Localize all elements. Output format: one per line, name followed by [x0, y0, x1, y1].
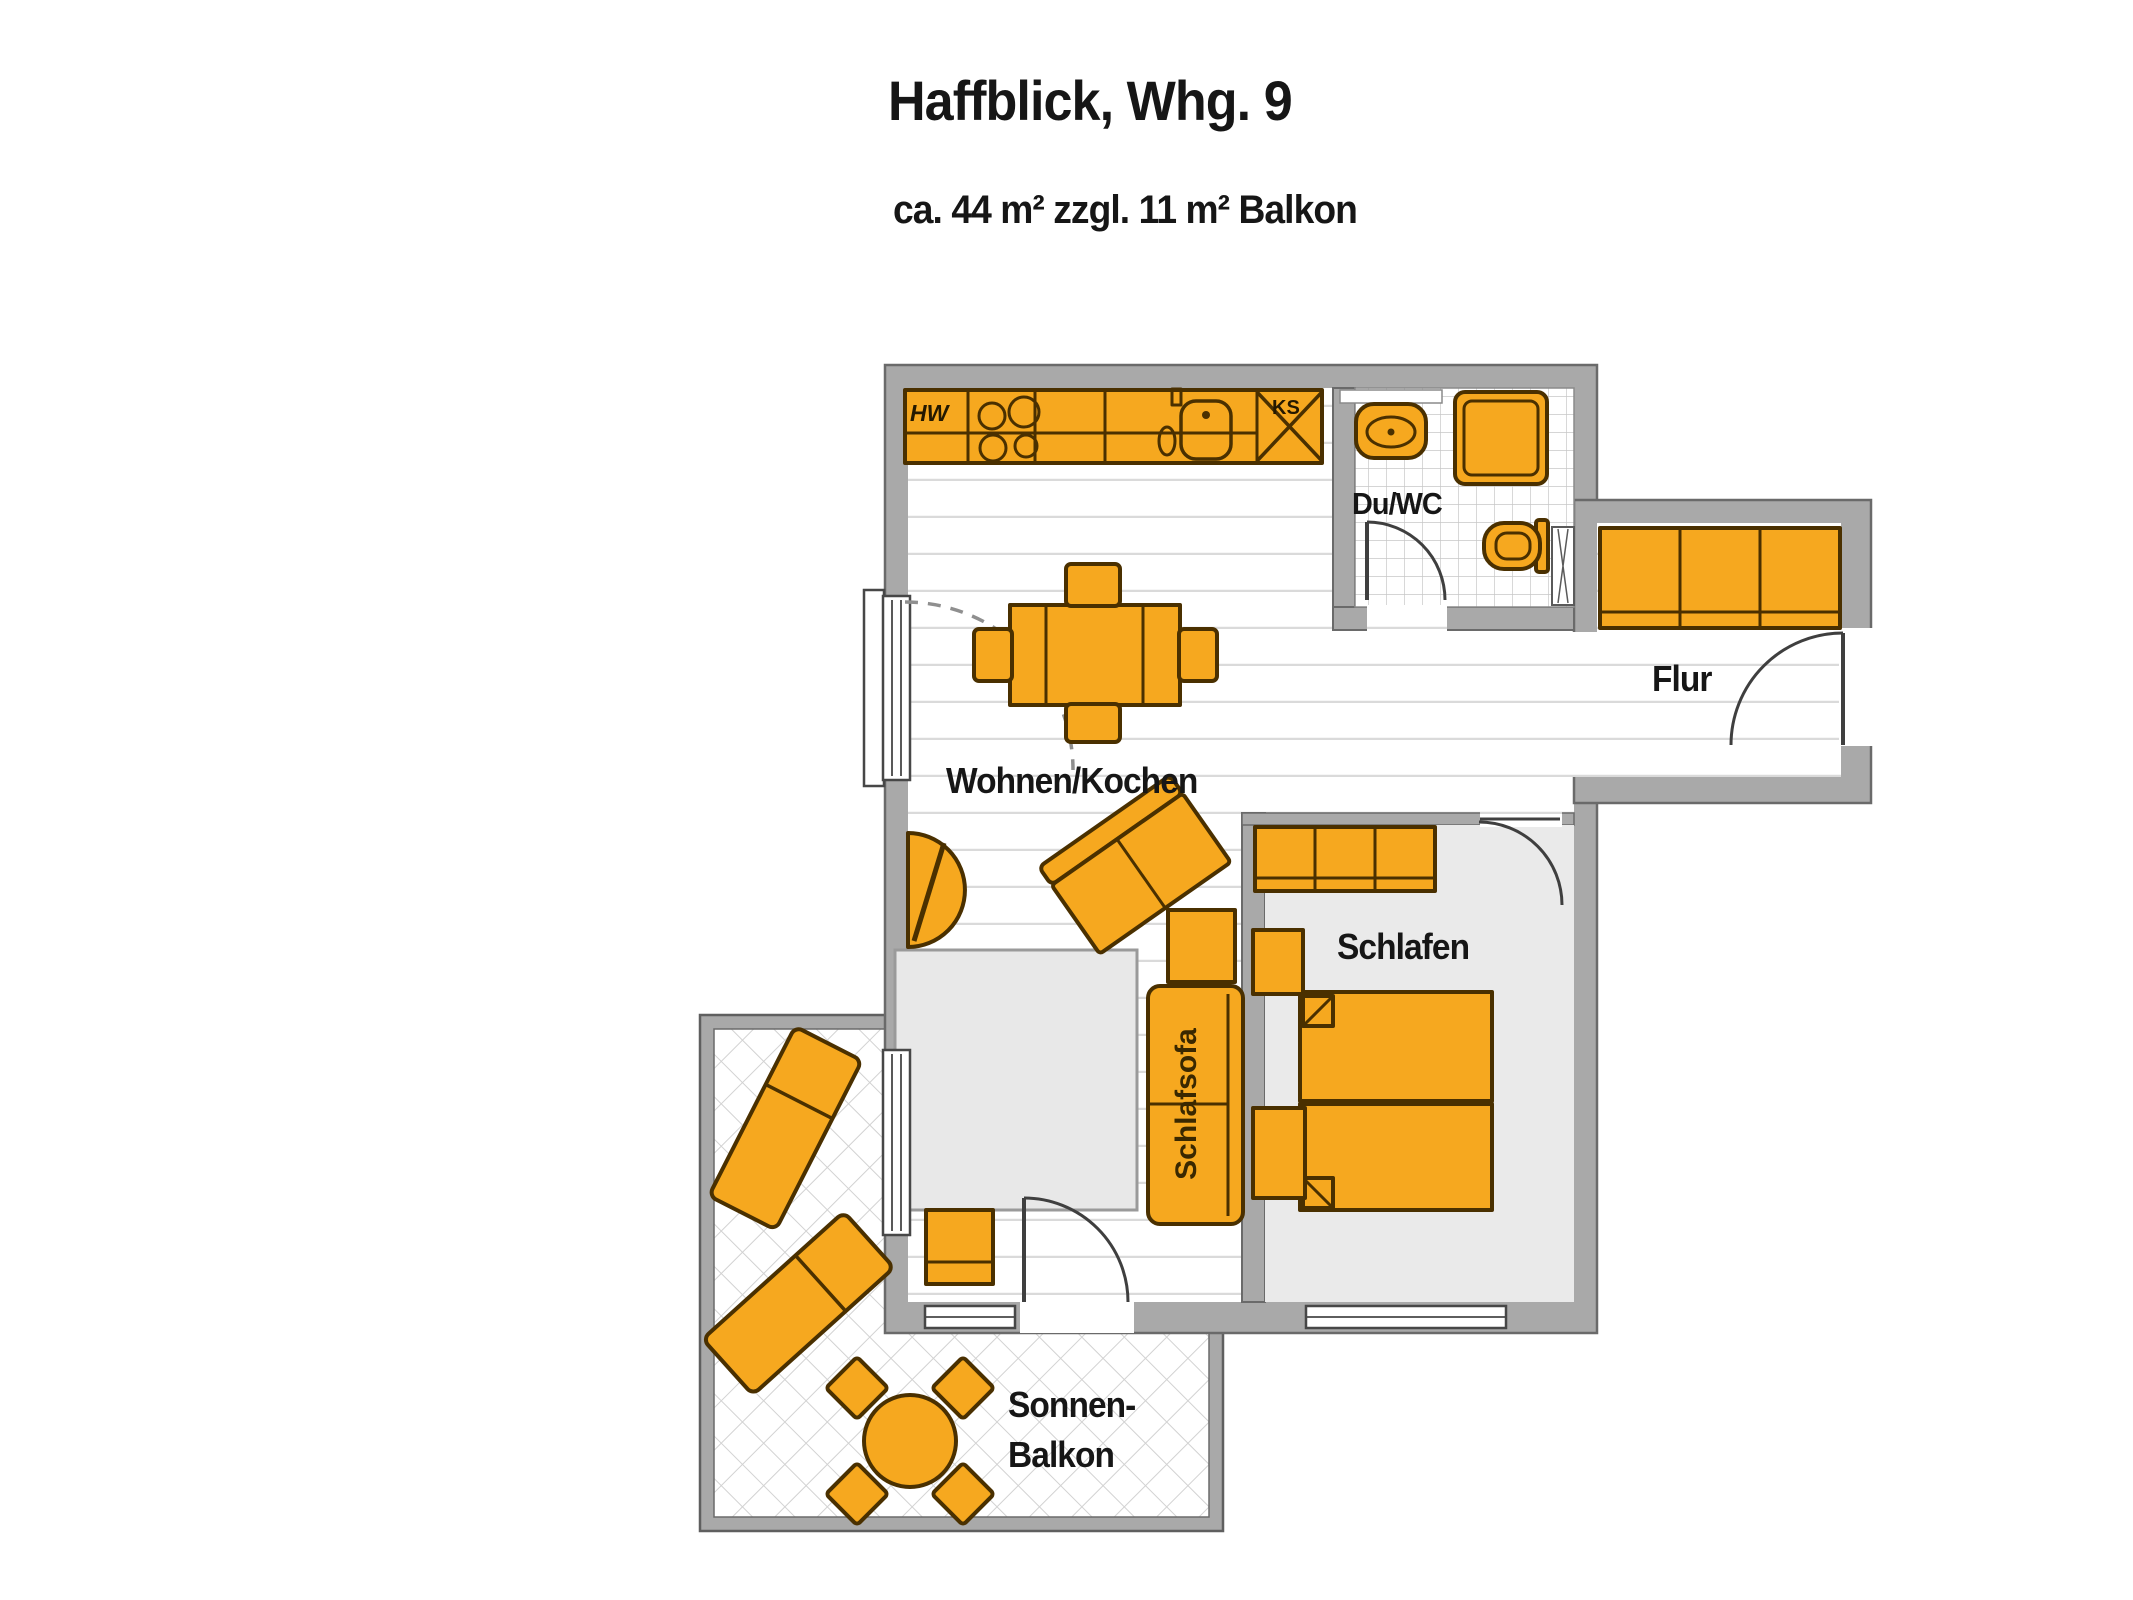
room-label-hallway: Flur — [1652, 658, 1712, 700]
washbasin — [1356, 404, 1426, 458]
rug — [895, 950, 1137, 1210]
nightstand-bottom — [1253, 1108, 1305, 1198]
bathroom-door-gap — [1367, 605, 1447, 632]
bedroom-wardrobe — [1255, 827, 1435, 891]
fridge-label: KS — [1272, 397, 1300, 419]
room-label-balcony-2: Balkon — [1008, 1434, 1114, 1476]
page-title: Haffblick, Whg. 9 — [888, 68, 1292, 133]
hallway-passage-floor — [1572, 632, 1599, 777]
bathroom-shelf — [1340, 390, 1442, 403]
floor-plan-page: HW KS Schlafsofa Haffblick, Whg. 9 ca. 4… — [0, 0, 2133, 1600]
kitchen-counter — [905, 390, 1322, 463]
double-bed — [1300, 992, 1492, 1210]
small-table — [926, 1210, 993, 1284]
side-table — [1168, 910, 1235, 982]
toilet — [1484, 520, 1548, 572]
room-label-balcony-1: Sonnen- — [1008, 1384, 1135, 1426]
dining-chair-left — [974, 629, 1012, 681]
page-subtitle: ca. 44 m² zzgl. 11 m² Balkon — [893, 188, 1357, 233]
dining-chair-top — [1066, 564, 1120, 606]
nightstand-top — [1253, 930, 1303, 994]
washer-label: HW — [910, 400, 951, 426]
bedroom-window — [1306, 1306, 1506, 1328]
dining-chair-bottom — [1066, 704, 1120, 742]
sleeper-sofa-label: Schlafsofa — [1170, 1028, 1203, 1180]
dining-chair-right — [1179, 629, 1217, 681]
dining-table — [1010, 605, 1180, 705]
room-label-bedroom: Schlafen — [1337, 926, 1469, 968]
room-label-living: Wohnen/Kochen — [946, 760, 1197, 802]
room-label-bathroom: Du/WC — [1352, 486, 1442, 522]
hallway-wardrobe — [1600, 528, 1840, 628]
shower — [1455, 392, 1547, 484]
balcony-french-door — [864, 590, 910, 786]
living-window-left — [883, 1050, 910, 1235]
balcony-table — [864, 1395, 956, 1487]
living-window-bottom — [925, 1306, 1015, 1328]
duct-shaft — [1552, 527, 1574, 605]
